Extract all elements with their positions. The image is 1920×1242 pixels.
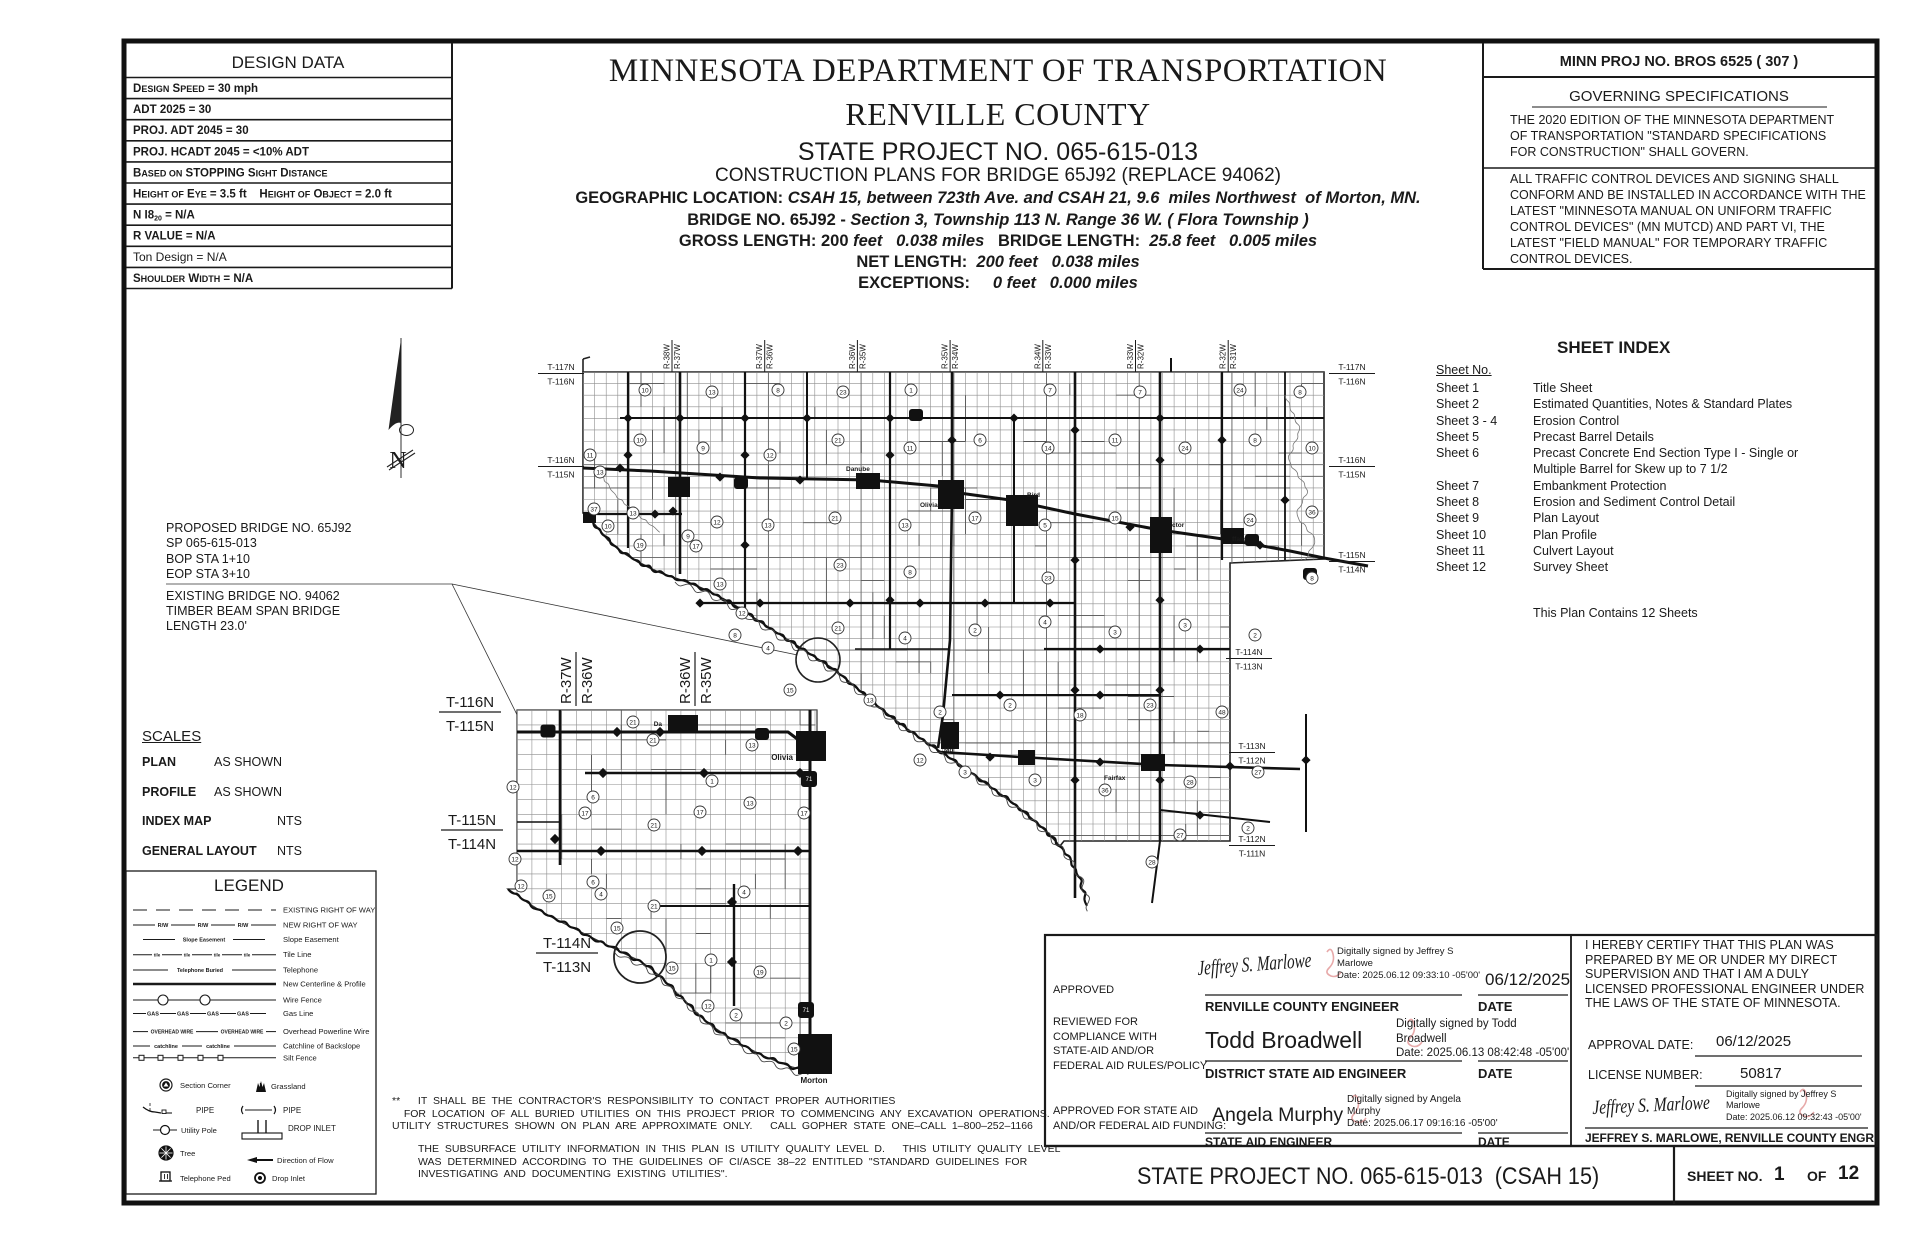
- svg-text:28: 28: [1186, 779, 1194, 786]
- svg-text:10: 10: [641, 387, 649, 394]
- svg-text:T-115N: T-115N: [1338, 550, 1365, 560]
- svg-text:Tile Line: Tile Line: [283, 950, 311, 959]
- svg-text:T-116N: T-116N: [547, 377, 574, 387]
- svg-text:17: 17: [696, 809, 704, 816]
- svg-text:12: 12: [511, 856, 519, 863]
- svg-text:T-114N: T-114N: [448, 836, 496, 853]
- svg-text:48: 48: [1218, 709, 1226, 716]
- svg-text:T-116N: T-116N: [1338, 377, 1365, 387]
- svg-text:tile: tile: [214, 953, 221, 958]
- svg-text:T-113N: T-113N: [1238, 741, 1265, 751]
- svg-text:R-34W: R-34W: [951, 344, 960, 369]
- svg-text:9: 9: [686, 533, 690, 540]
- svg-text:3: 3: [1033, 777, 1037, 784]
- svg-text:71: 71: [803, 1008, 810, 1014]
- svg-text:18: 18: [1076, 712, 1084, 719]
- svg-text:R/W: R/W: [158, 923, 170, 929]
- svg-text:R-36W: R-36W: [766, 344, 775, 369]
- svg-text:GAS: GAS: [207, 1012, 219, 1018]
- svg-text:R/W: R/W: [238, 923, 250, 929]
- svg-text:Da: Da: [654, 721, 663, 728]
- svg-text:12: 12: [509, 784, 517, 791]
- svg-text:17: 17: [971, 515, 979, 522]
- svg-text:T-112N: T-112N: [1238, 756, 1265, 766]
- svg-text:R VALUE = N/A: R VALUE = N/A: [133, 231, 216, 243]
- svg-text:tile: tile: [244, 953, 251, 958]
- svg-text:12: 12: [766, 452, 774, 459]
- svg-text:10: 10: [1308, 445, 1316, 452]
- svg-text:3: 3: [963, 769, 967, 776]
- svg-text:13: 13: [708, 389, 716, 396]
- svg-text:21: 21: [834, 437, 842, 444]
- svg-text:3: 3: [1113, 629, 1117, 636]
- svg-text:2: 2: [973, 627, 977, 634]
- svg-text:15: 15: [786, 687, 794, 694]
- svg-text:8: 8: [776, 387, 780, 394]
- svg-text:T-115N: T-115N: [1338, 470, 1365, 480]
- svg-text:BASED ON STOPPING SIGHT DIST: BASED ON STOPPING SIGHT DISTANCE: [133, 167, 327, 179]
- svg-text:R-37W: R-37W: [755, 344, 764, 369]
- svg-text:GAS: GAS: [177, 1012, 189, 1018]
- svg-text:24: 24: [1181, 445, 1189, 452]
- svg-text:T-114N: T-114N: [1338, 565, 1365, 575]
- svg-text:R-33W: R-33W: [1044, 344, 1053, 369]
- svg-text:36: 36: [1101, 787, 1109, 794]
- svg-text:T-115N: T-115N: [446, 718, 494, 735]
- svg-text:28: 28: [1148, 859, 1156, 866]
- svg-text:DESIGN DATA: DESIGN DATA: [232, 53, 345, 72]
- svg-text:Ton Design = N/A: Ton Design = N/A: [133, 250, 227, 264]
- svg-text:R-37W: R-37W: [673, 344, 682, 369]
- svg-text:Telephone Ped: Telephone Ped: [180, 1174, 231, 1183]
- svg-text:23: 23: [836, 562, 844, 569]
- svg-text:6: 6: [591, 879, 595, 886]
- svg-text:21: 21: [831, 515, 839, 522]
- svg-text:T-113N: T-113N: [543, 959, 591, 976]
- svg-text:R-35W: R-35W: [941, 344, 950, 369]
- svg-text:R-35W: R-35W: [698, 656, 715, 704]
- svg-text:Slope Easement: Slope Easement: [283, 935, 340, 944]
- svg-text:ffalo: ffalo: [1232, 536, 1246, 543]
- svg-text:36: 36: [1308, 509, 1316, 516]
- svg-text:R-38W: R-38W: [663, 344, 672, 369]
- svg-text:Drop Inlet: Drop Inlet: [272, 1174, 306, 1183]
- svg-text:R-36W: R-36W: [848, 344, 857, 369]
- svg-text:R-35W: R-35W: [858, 344, 867, 369]
- svg-text:PIPE: PIPE: [196, 1106, 214, 1115]
- svg-text:15: 15: [790, 1046, 798, 1053]
- svg-text:8: 8: [1253, 437, 1257, 444]
- svg-text:6: 6: [978, 437, 982, 444]
- svg-text:catchline: catchline: [206, 1044, 230, 1050]
- svg-text:Telephone: Telephone: [283, 966, 318, 975]
- svg-text:T-114N: T-114N: [1235, 647, 1262, 657]
- svg-text:Catchline of Backslope: Catchline of Backslope: [283, 1042, 360, 1051]
- svg-text:15: 15: [613, 925, 621, 932]
- svg-text:1: 1: [710, 778, 714, 785]
- svg-text:8: 8: [733, 632, 737, 639]
- svg-text:OVERHEAD WIRE: OVERHEAD WIRE: [221, 1030, 264, 1036]
- svg-text:11: 11: [907, 445, 914, 452]
- svg-text:27: 27: [1254, 769, 1262, 776]
- svg-text:NEW RIGHT OF WAY: NEW RIGHT OF WAY: [283, 921, 358, 930]
- svg-text:13: 13: [901, 522, 909, 529]
- svg-text:6: 6: [591, 794, 595, 801]
- svg-text:T-114N: T-114N: [543, 935, 591, 952]
- svg-text:8: 8: [1298, 389, 1302, 396]
- svg-text:N I820 = N/A: N I820 = N/A: [133, 210, 195, 223]
- svg-text:4: 4: [1043, 619, 1047, 626]
- svg-text:24: 24: [1236, 387, 1244, 394]
- svg-text:5: 5: [1043, 522, 1047, 529]
- svg-text:PIPE: PIPE: [283, 1106, 301, 1115]
- svg-text:13: 13: [596, 469, 604, 476]
- svg-text:23: 23: [1146, 702, 1154, 709]
- svg-text:T-115N: T-115N: [547, 470, 574, 480]
- svg-text:4: 4: [903, 635, 907, 642]
- svg-text:24: 24: [1246, 517, 1254, 524]
- svg-text:13: 13: [764, 522, 772, 529]
- svg-text:23: 23: [839, 389, 847, 396]
- svg-text:3: 3: [1183, 622, 1187, 629]
- svg-text:10: 10: [636, 437, 644, 444]
- svg-text:13: 13: [629, 510, 637, 517]
- svg-text:12: 12: [916, 757, 924, 764]
- svg-text:Olivia: Olivia: [771, 753, 793, 762]
- svg-text:Silt Fence: Silt Fence: [283, 1053, 317, 1062]
- svg-text:R-37W: R-37W: [558, 656, 575, 704]
- svg-text:13: 13: [748, 742, 756, 749]
- svg-text:12: 12: [713, 519, 721, 526]
- svg-text:R-36W: R-36W: [579, 656, 596, 704]
- svg-text:R-33W: R-33W: [1126, 344, 1135, 369]
- svg-text:11: 11: [587, 452, 594, 459]
- svg-text:Gas Line: Gas Line: [283, 1009, 313, 1018]
- svg-text:R-32W: R-32W: [1137, 344, 1146, 369]
- svg-text:7: 7: [1048, 387, 1052, 394]
- svg-text:2: 2: [784, 1020, 788, 1027]
- svg-text:1: 1: [709, 957, 713, 964]
- svg-text:Utility Pole: Utility Pole: [181, 1126, 217, 1135]
- svg-text:37: 37: [590, 506, 598, 513]
- svg-text:8: 8: [1310, 575, 1314, 582]
- svg-text:19: 19: [756, 969, 764, 976]
- svg-text:Overhead Powerline Wire: Overhead Powerline Wire: [283, 1027, 370, 1036]
- svg-text:T-116N: T-116N: [446, 694, 494, 711]
- svg-text:10: 10: [604, 523, 612, 530]
- svg-text:GOVERNING SPECIFICATIONS: GOVERNING SPECIFICATIONS: [1569, 88, 1789, 105]
- svg-text:R-36W: R-36W: [677, 656, 694, 704]
- svg-text:T-113N: T-113N: [1235, 662, 1262, 672]
- svg-text:Grassland: Grassland: [271, 1082, 306, 1091]
- svg-text:Mo: Mo: [944, 747, 953, 754]
- svg-text:11: 11: [1112, 437, 1119, 444]
- svg-text:PROJ. HCADT 2045 = <10% ADT: PROJ. HCADT 2045 = <10% ADT: [133, 146, 309, 158]
- svg-text:Bird: Bird: [1027, 492, 1040, 499]
- svg-text:15: 15: [1111, 515, 1119, 522]
- svg-text:ADT 2025 = 30: ADT 2025 = 30: [133, 104, 211, 116]
- svg-text:12: 12: [517, 883, 525, 890]
- svg-text:71: 71: [806, 777, 813, 783]
- svg-text:tile: tile: [154, 953, 161, 958]
- svg-text:GAS: GAS: [147, 1012, 159, 1018]
- svg-text:8: 8: [908, 569, 912, 576]
- svg-text:9: 9: [701, 445, 705, 452]
- svg-text:4: 4: [742, 889, 746, 896]
- svg-text:R-32W: R-32W: [1219, 344, 1228, 369]
- svg-text:Telephone Buried: Telephone Buried: [177, 968, 223, 974]
- svg-text:Danube: Danube: [846, 466, 870, 473]
- svg-text:1: 1: [909, 387, 913, 394]
- svg-text:13: 13: [746, 800, 754, 807]
- svg-text:HEIGHT OF EYE = 3.5 ft HEIG: HEIGHT OF EYE = 3.5 ft HEIGHT OF OBJECT …: [133, 189, 392, 201]
- svg-text:2: 2: [938, 709, 942, 716]
- svg-text:T-117N: T-117N: [547, 362, 574, 372]
- svg-text:GAS: GAS: [237, 1012, 249, 1018]
- svg-text:EXISTING RIGHT OF WAY: EXISTING RIGHT OF WAY: [283, 906, 375, 915]
- svg-text:2: 2: [1008, 702, 1012, 709]
- svg-text:DROP INLET: DROP INLET: [288, 1124, 336, 1133]
- svg-text:catchline: catchline: [154, 1044, 178, 1050]
- svg-text:Slope Easement: Slope Easement: [183, 938, 226, 944]
- svg-text:T-115N: T-115N: [448, 812, 496, 829]
- svg-text:Olivia: Olivia: [920, 502, 938, 509]
- svg-text:21: 21: [649, 737, 657, 744]
- svg-text:T-112N: T-112N: [1238, 834, 1265, 844]
- svg-text:21: 21: [629, 719, 637, 726]
- svg-text:LEGEND: LEGEND: [214, 876, 284, 895]
- svg-text:R/W: R/W: [198, 923, 210, 929]
- svg-text:17: 17: [800, 810, 808, 817]
- svg-text:Wire Fence: Wire Fence: [283, 996, 322, 1005]
- svg-text:Morton: Morton: [800, 1076, 827, 1085]
- svg-text:17: 17: [581, 810, 589, 817]
- svg-text:2: 2: [1253, 632, 1257, 639]
- svg-text:DESIGN SPEED = 30 mph: DESIGN SPEED = 30 mph: [133, 83, 258, 95]
- svg-text:13: 13: [866, 697, 874, 704]
- svg-text:21: 21: [834, 625, 842, 632]
- svg-text:12: 12: [738, 610, 746, 617]
- svg-text:23: 23: [1044, 575, 1052, 582]
- svg-text:R-34W: R-34W: [1033, 344, 1042, 369]
- svg-text:21: 21: [650, 903, 658, 910]
- svg-text:7: 7: [1138, 389, 1142, 396]
- svg-text:SHOULDER WIDTH = N/A: SHOULDER WIDTH = N/A: [133, 273, 253, 285]
- svg-text:R-31W: R-31W: [1229, 344, 1238, 369]
- svg-text:4: 4: [599, 891, 603, 898]
- svg-text:12: 12: [704, 1003, 712, 1010]
- svg-text:17: 17: [692, 543, 700, 550]
- svg-text:Fairfax: Fairfax: [1104, 775, 1126, 782]
- svg-text:15: 15: [668, 965, 676, 972]
- svg-text:2: 2: [734, 1012, 738, 1019]
- svg-text:14: 14: [1044, 445, 1052, 452]
- svg-text:New Centerline & Profile: New Centerline & Profile: [283, 980, 366, 989]
- svg-text:T-116N: T-116N: [1338, 455, 1365, 465]
- svg-text:Tree: Tree: [180, 1149, 195, 1158]
- svg-text:tile: tile: [184, 953, 191, 958]
- svg-text:27: 27: [1176, 832, 1184, 839]
- svg-text:Section Corner: Section Corner: [180, 1081, 231, 1090]
- svg-text:MINN PROJ NO. BROS 6525 ( 3: MINN PROJ NO. BROS 6525 ( 307 ): [1560, 54, 1799, 70]
- svg-text:13: 13: [716, 581, 724, 588]
- svg-text:T-117N: T-117N: [1338, 362, 1365, 372]
- svg-text:15: 15: [545, 893, 553, 900]
- svg-text:T-111N: T-111N: [1239, 849, 1266, 859]
- svg-text:Direction of Flow: Direction of Flow: [277, 1156, 334, 1165]
- svg-text:2: 2: [1246, 825, 1250, 832]
- svg-text:N: N: [389, 448, 406, 474]
- svg-text:T-116N: T-116N: [547, 455, 574, 465]
- svg-text:19: 19: [636, 542, 644, 549]
- svg-text:21: 21: [650, 822, 658, 829]
- svg-text:PROJ. ADT 2045 = 30: PROJ. ADT 2045 = 30: [133, 125, 249, 137]
- svg-text:ctor: ctor: [1172, 522, 1185, 529]
- svg-text:OVERHEAD WIRE: OVERHEAD WIRE: [151, 1030, 194, 1036]
- svg-text:4: 4: [766, 645, 770, 652]
